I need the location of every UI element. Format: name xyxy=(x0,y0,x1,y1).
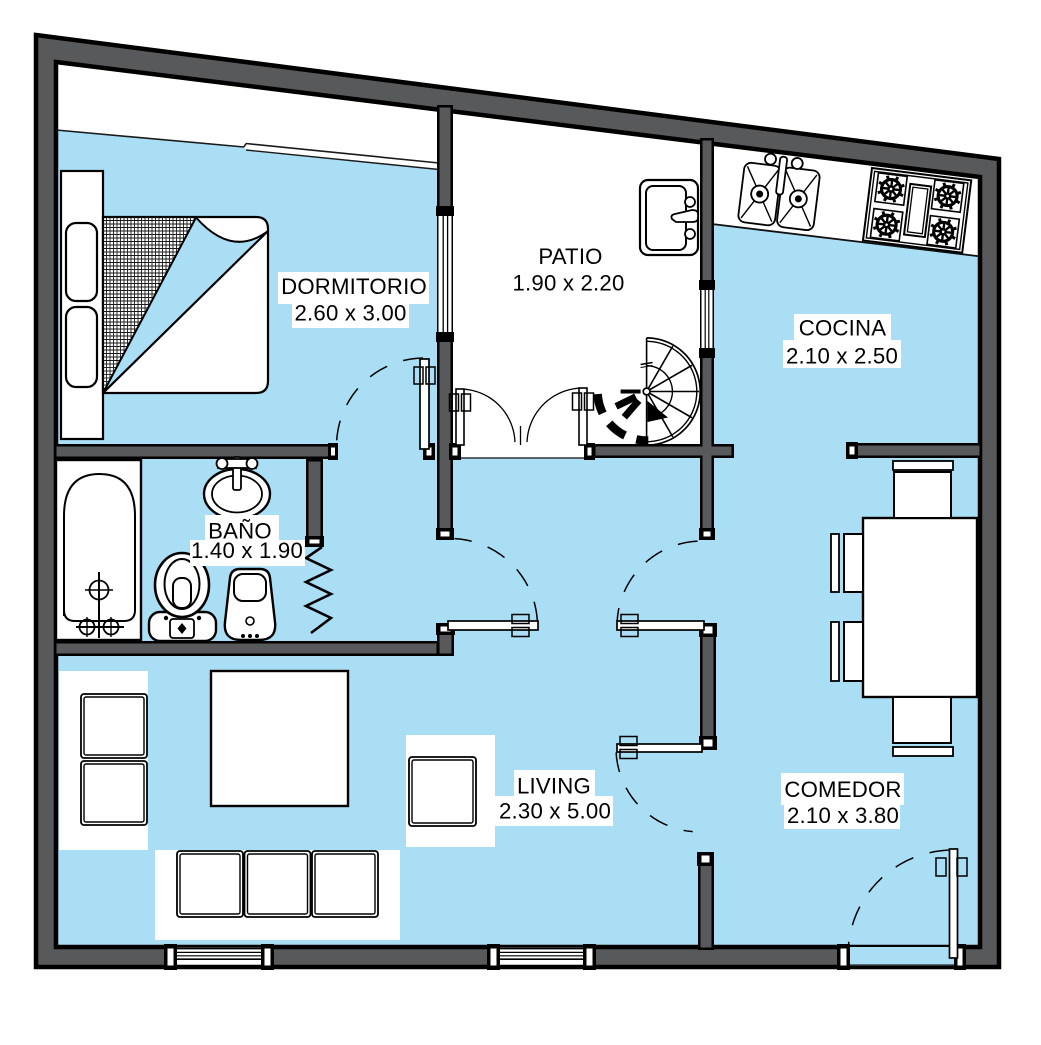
svg-text:2.10 x 2.50: 2.10 x 2.50 xyxy=(786,344,898,369)
svg-text:2.10 x 3.80: 2.10 x 3.80 xyxy=(787,803,899,828)
svg-text:DORMITORIO: DORMITORIO xyxy=(281,274,427,299)
svg-text:COCINA: COCINA xyxy=(799,316,887,341)
svg-text:1.90 x 2.20: 1.90 x 2.20 xyxy=(513,271,625,296)
svg-text:2.30 x 5.00: 2.30 x 5.00 xyxy=(499,799,611,824)
svg-text:LIVING: LIVING xyxy=(517,774,591,799)
svg-text:COMEDOR: COMEDOR xyxy=(784,777,901,802)
svg-text:1.40 x 1.90: 1.40 x 1.90 xyxy=(191,538,303,563)
svg-text:2.60 x 3.00: 2.60 x 3.00 xyxy=(295,301,407,326)
svg-text:PATIO: PATIO xyxy=(538,244,602,269)
